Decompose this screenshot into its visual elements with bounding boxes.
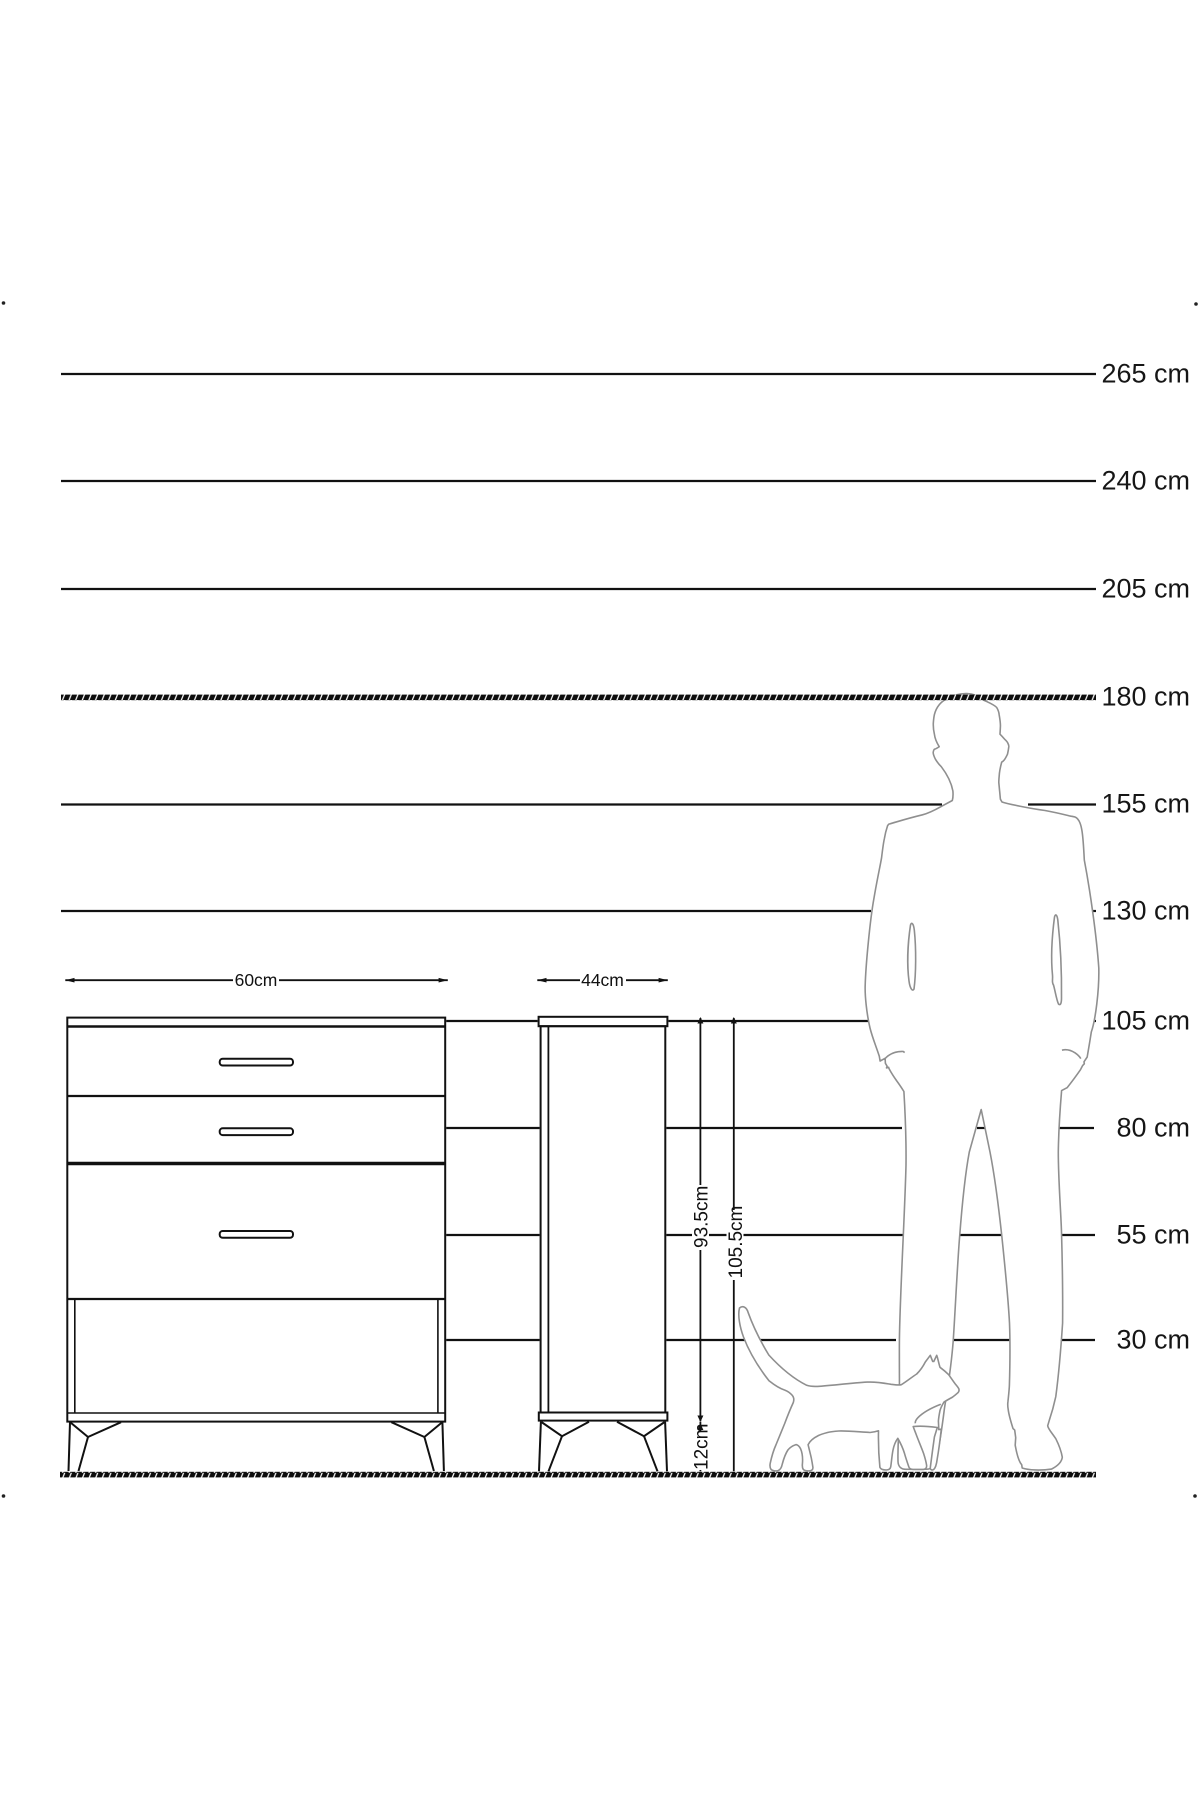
svg-text:130 cm: 130 cm bbox=[1101, 896, 1190, 926]
svg-text:60cm: 60cm bbox=[235, 970, 278, 990]
svg-text:105 cm: 105 cm bbox=[1101, 1006, 1190, 1036]
svg-text:205 cm: 205 cm bbox=[1101, 574, 1190, 604]
svg-text:240 cm: 240 cm bbox=[1101, 466, 1190, 496]
svg-text:12cm: 12cm bbox=[692, 1424, 713, 1470]
svg-text:265 cm: 265 cm bbox=[1101, 359, 1190, 389]
svg-text:55 cm: 55 cm bbox=[1116, 1220, 1190, 1250]
svg-text:180 cm: 180 cm bbox=[1101, 682, 1190, 712]
svg-text:105.5cm: 105.5cm bbox=[726, 1206, 747, 1279]
svg-text:80 cm: 80 cm bbox=[1116, 1113, 1190, 1143]
svg-text:44cm: 44cm bbox=[581, 970, 624, 990]
svg-text:30 cm: 30 cm bbox=[1116, 1325, 1190, 1355]
svg-text:155 cm: 155 cm bbox=[1101, 789, 1190, 819]
svg-text:93.5cm: 93.5cm bbox=[692, 1186, 713, 1248]
